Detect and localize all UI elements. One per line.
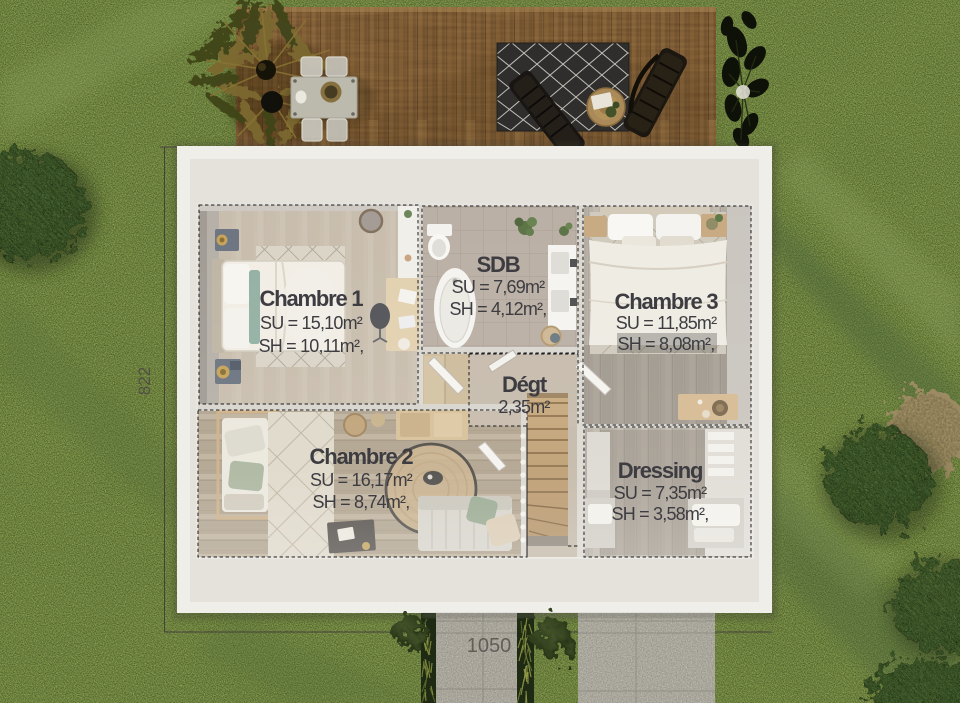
svg-text:Chambre 1: Chambre 1 <box>260 286 364 311</box>
svg-text:Chambre 3: Chambre 3 <box>615 289 719 314</box>
svg-text:Dégt: Dégt <box>502 372 548 397</box>
svg-text:SH = 10,11m²,: SH = 10,11m², <box>259 336 364 356</box>
svg-text:SH = 3,58m²,: SH = 3,58m², <box>612 504 709 524</box>
svg-text:2,35m²: 2,35m² <box>498 397 550 417</box>
svg-text:SU = 7,35m²: SU = 7,35m² <box>614 483 708 503</box>
svg-text:SU = 11,85m²: SU = 11,85m² <box>616 313 717 333</box>
svg-text:SH = 8,08m²,: SH = 8,08m², <box>618 334 715 354</box>
svg-text:SU = 16,17m²: SU = 16,17m² <box>310 470 413 490</box>
svg-text:822: 822 <box>135 367 154 395</box>
svg-text:Dressing: Dressing <box>618 458 703 483</box>
svg-text:Chambre 2: Chambre 2 <box>310 444 414 469</box>
svg-text:SU = 15,10m²: SU = 15,10m² <box>260 313 363 333</box>
svg-text:SDB: SDB <box>477 252 520 277</box>
svg-text:SU = 7,69m²: SU = 7,69m² <box>452 277 546 297</box>
svg-text:1050: 1050 <box>467 635 512 657</box>
svg-text:SH = 4,12m²,: SH = 4,12m², <box>450 299 547 319</box>
svg-text:SH = 8,74m²,: SH = 8,74m², <box>313 492 410 512</box>
